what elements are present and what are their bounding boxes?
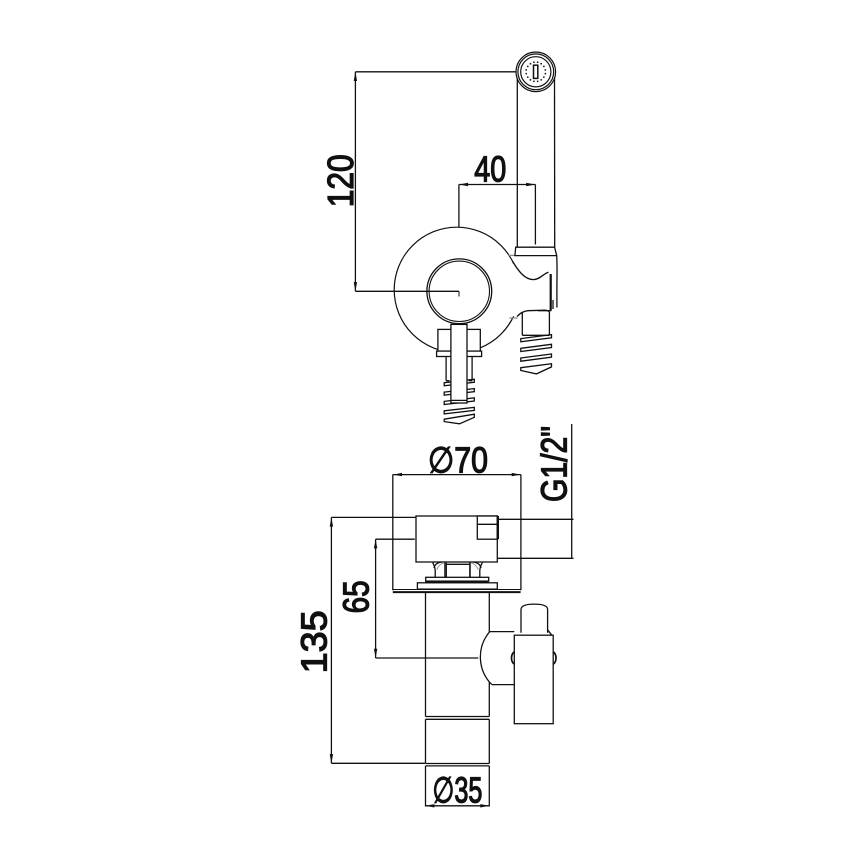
svg-text:G1/2": G1/2" — [534, 426, 575, 502]
svg-text:65: 65 — [336, 580, 377, 613]
svg-text:∅70: ∅70 — [428, 439, 488, 480]
svg-text:∅35: ∅35 — [432, 770, 482, 811]
svg-text:135: 135 — [294, 610, 335, 673]
svg-text:120: 120 — [320, 154, 361, 207]
svg-text:40: 40 — [474, 149, 506, 190]
